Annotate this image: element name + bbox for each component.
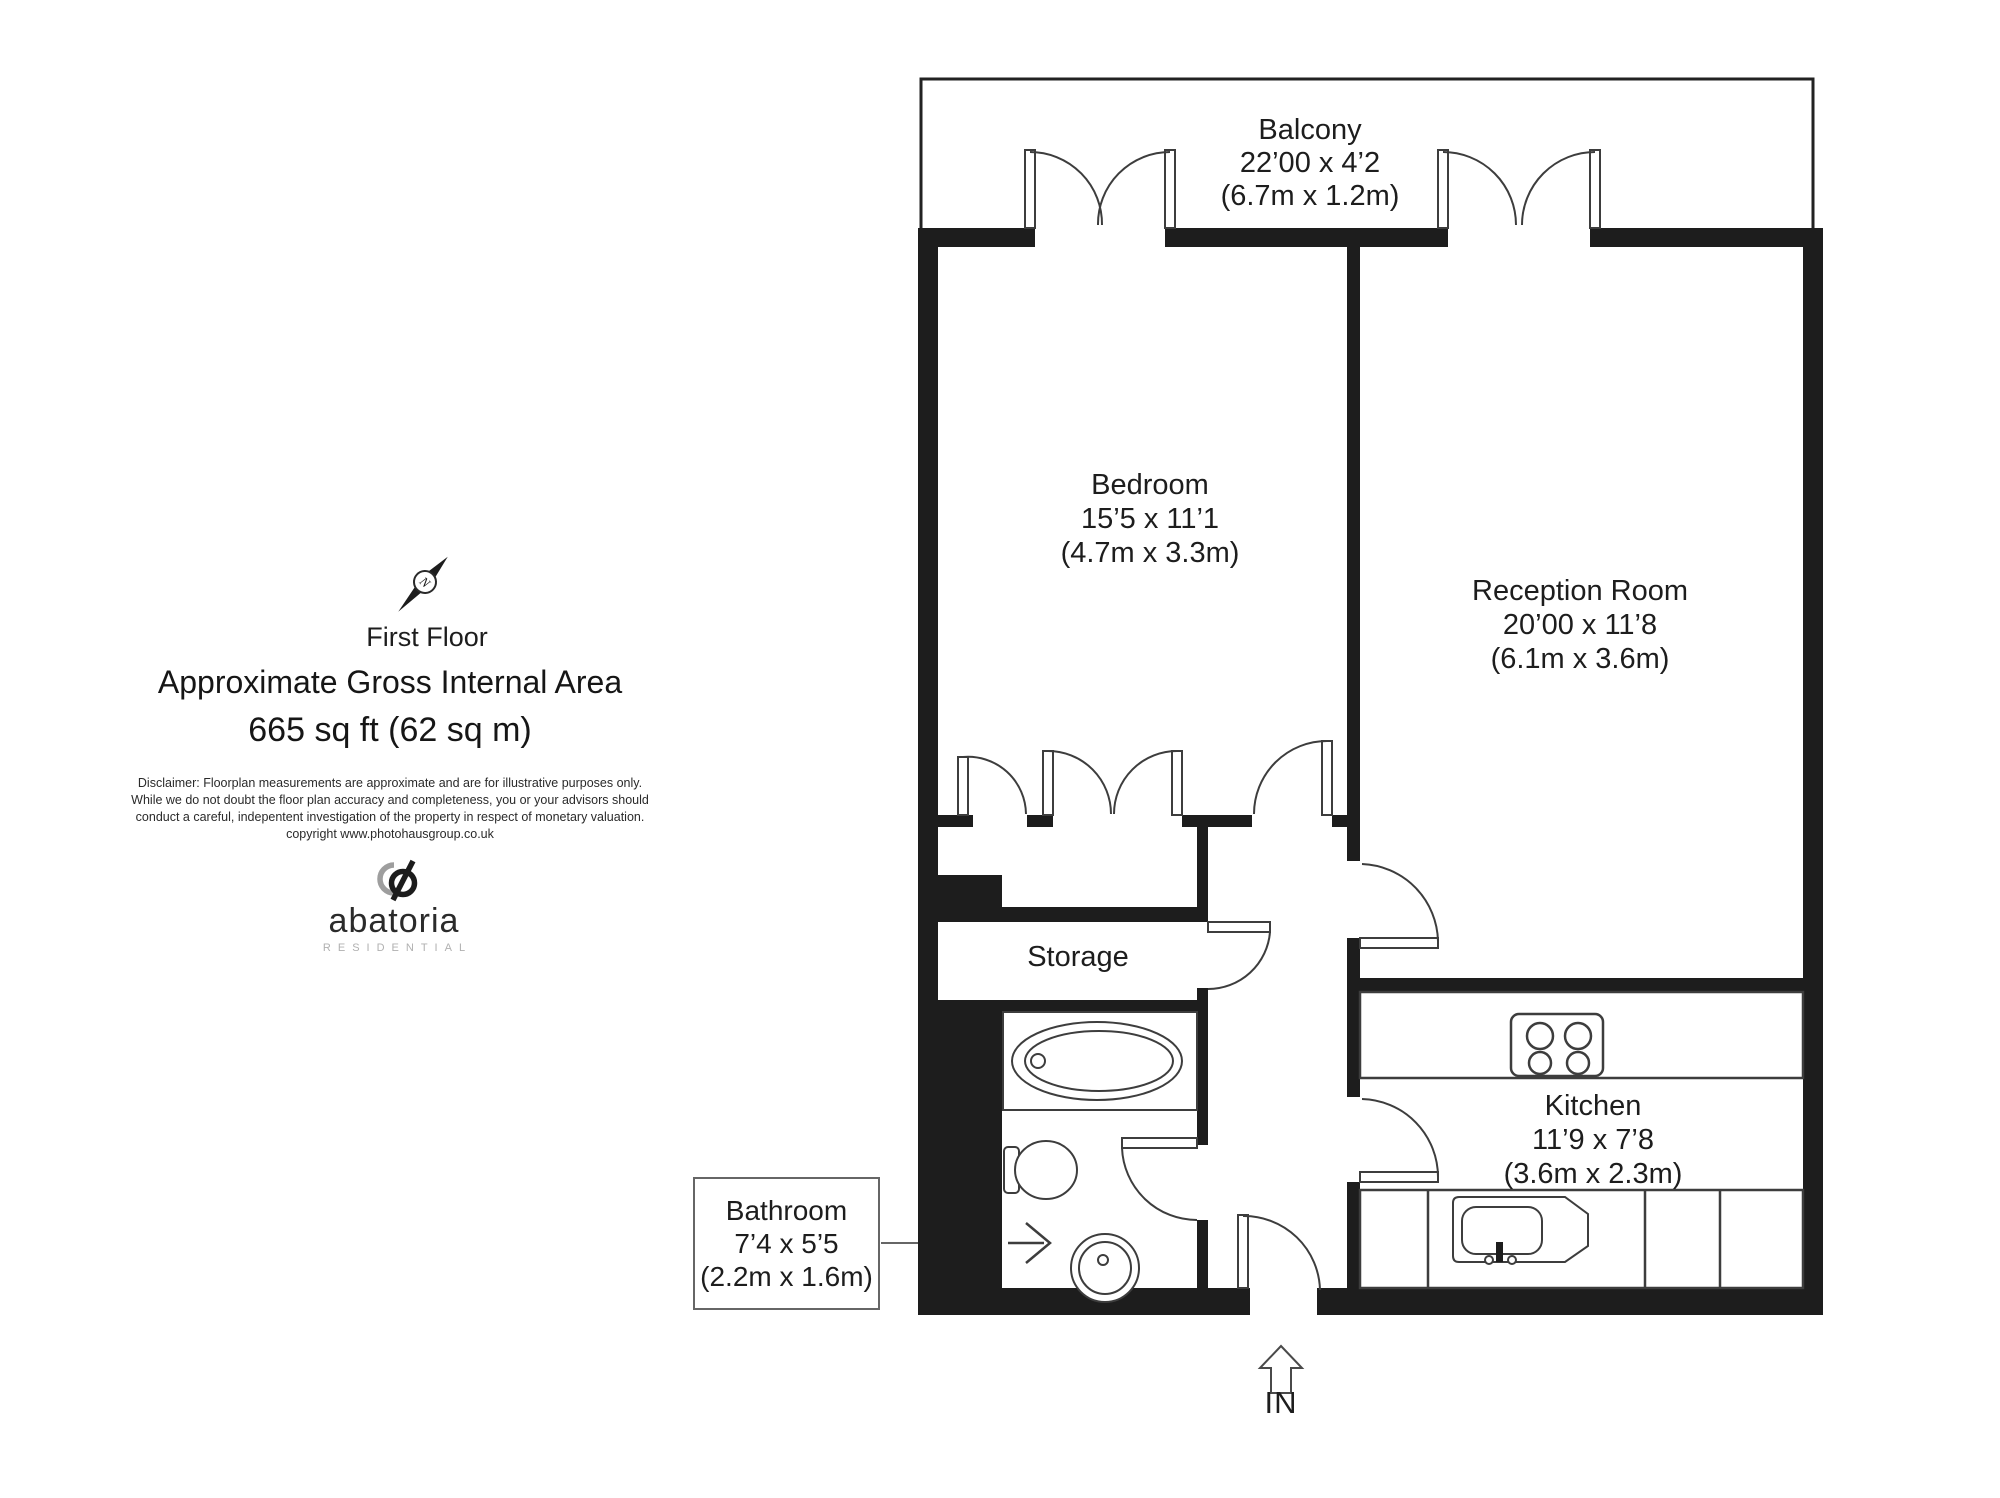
toilet xyxy=(1004,1141,1077,1199)
balcony-name: Balcony xyxy=(1221,114,1400,147)
page-title: Approximate Gross Internal Area xyxy=(158,661,622,703)
kitchen-label: Kitchen 11’9 x 7’8 (3.6m x 2.3m) xyxy=(1504,1089,1683,1191)
storage-label: Storage xyxy=(1027,940,1129,974)
reception-door xyxy=(1360,864,1438,948)
bathroom-name: Bathroom xyxy=(695,1194,878,1227)
bathroom-callout: Bathroom 7’4 x 5’5 (2.2m x 1.6m) xyxy=(693,1177,880,1310)
floorplan-page: Balcony 22’00 x 4’2 (6.7m x 1.2m) Bedroo… xyxy=(0,0,2000,1498)
reception-metric: (6.1m x 3.6m) xyxy=(1472,642,1688,676)
kitchen-name: Kitchen xyxy=(1504,1089,1683,1123)
wash-basin xyxy=(1071,1234,1139,1302)
reception-imperial: 20’00 x 11’8 xyxy=(1472,608,1688,642)
hob xyxy=(1511,1014,1603,1076)
kitchen-door xyxy=(1360,1099,1438,1182)
brand-tagline: RESIDENTIAL xyxy=(316,941,472,955)
balcony-metric: (6.7m x 1.2m) xyxy=(1221,180,1400,213)
kitchen-imperial: 11’9 x 7’8 xyxy=(1504,1123,1683,1157)
bedroom-door xyxy=(1254,741,1332,815)
brand-block: abatoria RESIDENTIAL xyxy=(316,903,472,955)
bathtub xyxy=(1003,1012,1197,1110)
bathroom-arrow-icon xyxy=(1008,1223,1050,1263)
storage-door xyxy=(1208,922,1270,989)
entrance-door xyxy=(1238,1215,1320,1290)
floor-title: First Floor xyxy=(366,621,488,653)
brand-logo-icon xyxy=(370,858,418,904)
closet-doors xyxy=(958,751,1182,815)
bathroom-door xyxy=(1122,1138,1197,1220)
bedroom-label: Bedroom 15’5 x 11’1 (4.7m x 3.3m) xyxy=(1061,468,1240,570)
balcony-label: Balcony 22’00 x 4’2 (6.7m x 1.2m) xyxy=(1221,114,1400,213)
kitchen-metric: (3.6m x 2.3m) xyxy=(1504,1157,1683,1191)
north-arrow-icon: N xyxy=(379,536,471,628)
disclaimer-line-2: While we do not doubt the floor plan acc… xyxy=(131,792,649,809)
entrance-label: IN xyxy=(1265,1386,1298,1420)
disclaimer-line-3: conduct a careful, indepentent investiga… xyxy=(131,809,649,826)
bedroom-name: Bedroom xyxy=(1061,468,1240,502)
balcony-imperial: 22’00 x 4’2 xyxy=(1221,147,1400,180)
kitchen-sink xyxy=(1453,1197,1588,1264)
disclaimer-line-1: Disclaimer: Floorplan measurements are a… xyxy=(131,775,649,792)
reception-name: Reception Room xyxy=(1472,574,1688,608)
french-doors-bedroom xyxy=(1025,150,1175,228)
bathroom-metric: (2.2m x 1.6m) xyxy=(695,1260,878,1293)
bathroom-imperial: 7’4 x 5’5 xyxy=(695,1227,878,1260)
gross-area-value: 665 sq ft (62 sq m) xyxy=(248,709,531,751)
copyright-line: copyright www.photohausgroup.co.uk xyxy=(131,826,649,843)
disclaimer-text: Disclaimer: Floorplan measurements are a… xyxy=(131,775,649,843)
brand-name: abatoria xyxy=(316,903,472,939)
reception-room-label: Reception Room 20’00 x 11’8 (6.1m x 3.6m… xyxy=(1472,574,1688,676)
storage-name: Storage xyxy=(1027,940,1129,974)
french-doors-reception xyxy=(1438,150,1600,228)
bedroom-metric: (4.7m x 3.3m) xyxy=(1061,536,1240,570)
bedroom-imperial: 15’5 x 11’1 xyxy=(1061,502,1240,536)
